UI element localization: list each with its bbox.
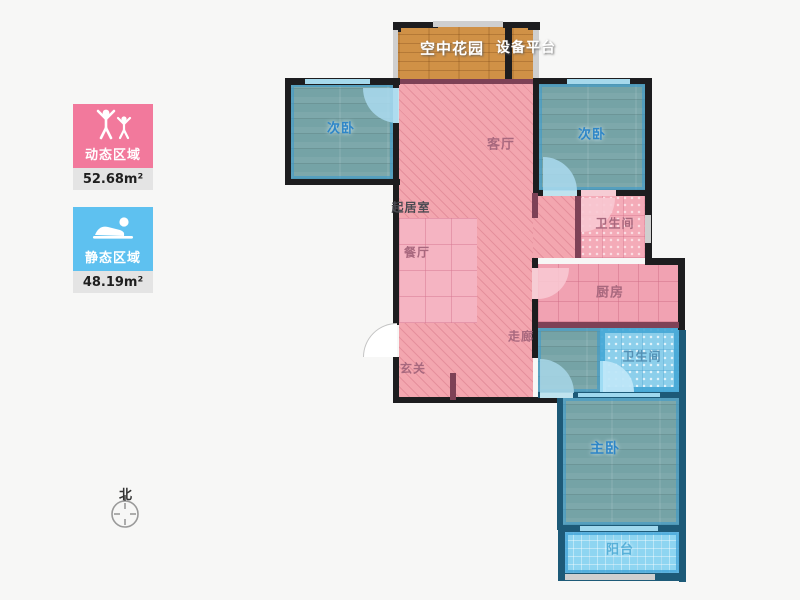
label-balcony: 阳台	[606, 539, 634, 558]
label-sitting-room: 起居室	[391, 199, 430, 216]
dining-table-area	[399, 218, 477, 323]
wall-segment	[533, 84, 539, 196]
window	[565, 574, 655, 580]
window	[645, 215, 651, 243]
label-master-bedroom: 主卧	[590, 438, 620, 458]
label-bathroom-bottom: 卫生间	[622, 348, 661, 365]
label-equipment-platform: 设备平台	[496, 37, 556, 57]
label-bathroom-top: 卫生间	[595, 215, 634, 232]
door-gap	[581, 190, 616, 196]
wall-segment	[399, 79, 533, 84]
wall-segment	[532, 193, 538, 218]
wall-segment	[285, 179, 400, 185]
room-master-bedroom[interactable]	[563, 398, 679, 525]
door-arc-entrance	[363, 323, 397, 357]
label-bedroom-left: 次卧	[327, 118, 355, 137]
room-living-extension	[533, 196, 575, 258]
label-corridor: 走廊	[508, 328, 534, 345]
wall-segment	[557, 397, 563, 530]
wall-segment	[678, 258, 685, 330]
label-kitchen: 厨房	[596, 282, 624, 301]
wall-segment	[528, 22, 540, 30]
wall-segment	[285, 78, 291, 185]
wall-segment	[679, 330, 686, 582]
label-bedroom-right: 次卧	[578, 124, 606, 143]
window	[305, 79, 370, 84]
label-dining-room: 餐厅	[404, 244, 430, 261]
window	[567, 79, 630, 84]
label-living-room: 客厅	[487, 134, 515, 153]
window	[393, 30, 398, 80]
label-sky-garden: 空中花园	[420, 38, 484, 59]
wall-segment	[538, 322, 679, 328]
label-entry: 玄关	[400, 360, 426, 377]
window	[578, 393, 660, 397]
floorplan-page: { "legend": { "dynamic": { "label": "动态区…	[0, 0, 800, 600]
floor-plan: 空中花园 设备平台 次卧 次卧 客厅 起居室 餐厅 卫生间 厨房 走廊 玄关 卫…	[0, 0, 800, 600]
wall-segment	[450, 373, 456, 400]
window	[580, 526, 658, 531]
window	[433, 21, 503, 27]
